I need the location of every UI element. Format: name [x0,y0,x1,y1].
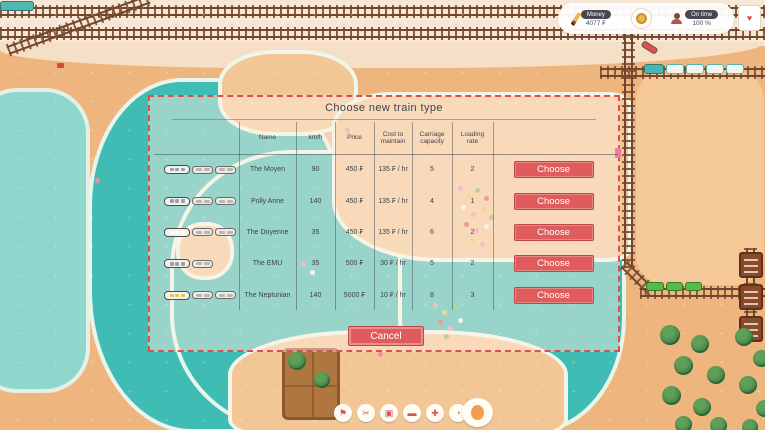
station-icon: ▣ [385,408,394,419]
carriage-icon [215,228,236,236]
train-speed: 140 [296,198,335,205]
train-loading: 2 [452,166,493,173]
demolish-tool-button[interactable]: ✂ [357,404,375,422]
ontime-chip: On time 100 % [671,10,718,27]
train-row-list: The Moyen 90 450 ₣ 135 ₣ / hr 5 2 Choose… [158,154,614,311]
carriage-icon [215,166,236,174]
carriage-icon [192,166,213,174]
train-capacity: 6 [412,229,452,236]
column-divider [493,122,494,310]
train-loading: 2 [452,260,493,267]
header-capacity: Carriage capacity [412,131,452,146]
palm-tree-icon [314,372,330,388]
heart-icon: ♥ [747,13,752,23]
pointer-tool-button[interactable]: ⚑ [334,404,352,422]
ontime-value: 100 % [692,21,710,28]
train-name: Polly Anne [239,198,296,205]
carriage-icon [685,282,702,291]
train-capacity: 8 [412,292,452,299]
choose-button[interactable]: Choose [514,255,594,272]
train-price: 450 ₣ [335,166,374,173]
column-divider [239,122,240,310]
locomotive-icon [164,291,190,300]
choose-button[interactable]: Choose [514,161,594,178]
mail-card[interactable]: ♥ [738,5,761,31]
train-cost: 135 ₣ / hr [374,166,412,173]
train-price: 450 ₣ [335,229,374,236]
train-capacity: 4 [412,198,452,205]
top-hud: Money 4077 ₣ On time 100 % [558,3,734,34]
clock-icon: ◔ [455,408,460,418]
flower-icon [95,178,100,183]
train-name: The EMU [239,260,296,267]
train-name: The Moyen [239,166,296,173]
train-row: Polly Anne 140 450 ₣ 135 ₣ / hr 4 1 Choo… [158,185,614,216]
pond [0,88,90,393]
carriage-icon [726,64,744,74]
header-divider [154,154,618,155]
freight-train [646,282,702,291]
train-speed: 90 [296,166,335,173]
palm-tree-icon [753,350,765,367]
cargo-wagon-icon [739,252,763,278]
palm-tree-icon [674,356,693,375]
train-loading: 1 [452,198,493,205]
train-capacity: 5 [412,260,452,267]
cancel-button[interactable]: Cancel [348,326,424,346]
train-name: The Doyenne [239,229,296,236]
main-menu-button[interactable] [462,398,493,427]
locomotive-icon [164,165,190,174]
train-cost: 135 ₣ / hr [374,198,412,205]
header-cost: Cost to maintain [374,131,412,146]
train-cost: 30 ₣ / hr [374,260,412,267]
signal-icon: ✚ [431,408,439,419]
flower-icon [378,352,383,357]
palm-tree-icon [288,352,306,370]
palm-tree-icon [735,328,753,346]
choose-button[interactable]: Choose [514,287,594,304]
carriage-icon [686,64,704,74]
train-loading: 3 [452,292,493,299]
choose-button[interactable]: Choose [514,224,594,241]
station-tool-button[interactable]: ▣ [380,404,398,422]
palm-tree-icon [660,325,680,345]
palm-tree-icon [710,417,727,430]
train-price: 500 ₣ [335,260,374,267]
palm-tree-icon [691,335,709,353]
palm-tree-icon [707,366,725,384]
train-cost: 135 ₣ / hr [374,229,412,236]
train-row: The Moyen 90 450 ₣ 135 ₣ / hr 5 2 Choose [158,154,614,185]
train-table: Name km/h Price Cost to maintain Carriag… [158,122,614,311]
flag-icon: ⚑ [339,408,347,419]
carriage-icon [192,197,213,205]
train-sprite [158,291,239,300]
buffer-stop [57,63,64,68]
palm-tree-icon [693,398,711,416]
money-label: Money [581,10,611,19]
table-header-row: Name km/h Price Cost to maintain Carriag… [158,122,614,154]
ontime-label: On time [685,10,718,19]
train-row: The Doyenne 35 450 ₣ 135 ₣ / hr 6 2 Choo… [158,217,614,248]
palm-tree-icon [756,400,765,417]
locomotive-icon [164,259,190,268]
carriage-icon [192,260,213,268]
train-row: The EMU 35 500 ₣ 30 ₣ / hr 5 2 Choose [158,248,614,279]
train-sprite [158,259,239,268]
choose-train-dialog: Choose new train type Name km/h Price Co… [148,95,620,352]
signal-tool-button[interactable]: ✚ [426,404,444,422]
passenger-icon [671,13,682,24]
money-chip: Money 4077 ₣ [574,10,611,27]
carriage-icon [666,282,683,291]
column-divider [412,122,413,310]
coin-badge [631,8,652,29]
dialog-title: Choose new train type [150,102,618,114]
palm-tree-icon [662,386,681,405]
egg-icon [471,405,484,420]
train-icon: ▬ [408,408,417,418]
column-divider [374,122,375,310]
train-speed: 140 [296,292,335,299]
carriage-icon [706,64,724,74]
train-icon [0,1,34,11]
bottom-toolbar: ⚑✂▣▬✚◔ [334,404,467,422]
train-speed: 35 [296,229,335,236]
carriage-icon [666,64,684,74]
train-tool-button[interactable]: ▬ [403,404,421,422]
train-loading: 2 [452,229,493,236]
carriage-icon [215,197,236,205]
train-capacity: 5 [412,166,452,173]
train-speed: 35 [296,260,335,267]
train-cost: 10 ₣ / hr [374,292,412,299]
carriage-icon [215,291,236,299]
train-row: The Neptunian 140 5000 ₣ 10 ₣ / hr 8 3 C… [158,280,614,311]
header-loading: Loading rate [452,131,493,146]
header-price: Price [335,134,374,141]
carriage-icon [192,291,213,299]
cargo-wagon-icon [739,284,763,310]
money-value: 4077 ₣ [586,21,606,28]
train-price: 5000 ₣ [335,292,374,299]
palm-tree-icon [739,376,757,394]
pencil-icon [570,12,581,26]
dialog-edge-marker [615,148,621,158]
title-divider [172,119,596,120]
palm-tree-icon [675,416,692,430]
game-screen: Choose new train type Name km/h Price Co… [0,0,765,430]
palm-tree-icon [742,419,758,430]
column-divider [452,122,453,310]
column-divider [335,122,336,310]
locomotive-icon [164,197,190,206]
carriage-icon [192,228,213,236]
locomotive-icon [164,228,190,237]
train-price: 450 ₣ [335,198,374,205]
column-divider [296,122,297,310]
scissors-icon: ✂ [362,408,370,419]
train-sprite [158,165,239,174]
train-sprite [158,197,239,206]
header-kmh: km/h [296,134,335,141]
coin-icon [636,13,647,24]
train-sprite [158,228,239,237]
locomotive-icon [646,282,664,291]
locomotive-icon [644,64,664,74]
passenger-train [644,64,744,74]
header-name: Name [239,134,296,141]
train-name: The Neptunian [239,292,296,299]
choose-button[interactable]: Choose [514,193,594,210]
